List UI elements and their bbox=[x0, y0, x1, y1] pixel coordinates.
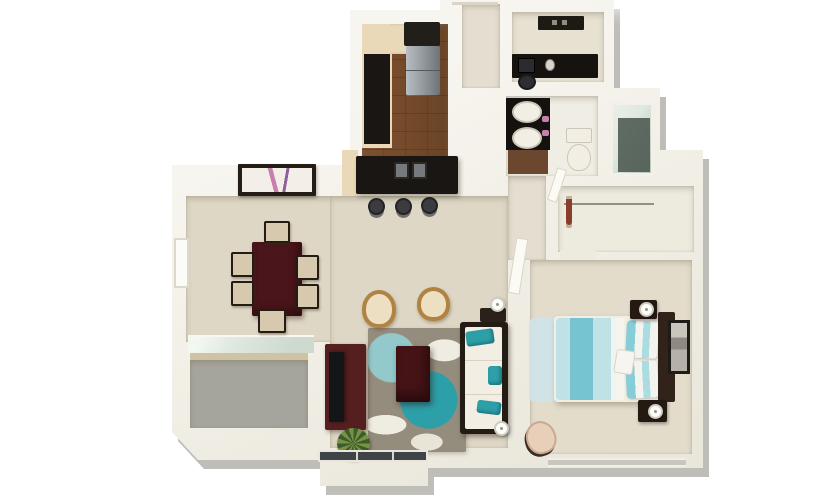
floor-lamp bbox=[490, 297, 505, 312]
entry-hall-floor bbox=[462, 4, 500, 88]
dining-wall-art bbox=[238, 164, 316, 196]
office-wall-shelf bbox=[538, 16, 584, 30]
vanity-accessory bbox=[542, 116, 549, 122]
vanity-accessory bbox=[542, 130, 549, 136]
office-chair bbox=[518, 74, 536, 90]
dining-chair bbox=[264, 221, 290, 243]
bed-accent-cushion bbox=[613, 349, 636, 376]
kitchen-black-countertop bbox=[364, 54, 390, 144]
dining-chair bbox=[296, 284, 319, 309]
dining-window bbox=[174, 238, 189, 288]
dining-chair bbox=[231, 252, 254, 277]
vanity-sink bbox=[512, 127, 542, 149]
vanity-sink bbox=[512, 101, 542, 123]
bathroom-vanity-wood-base bbox=[508, 150, 548, 174]
flat-tv bbox=[329, 352, 344, 422]
wicker-chair bbox=[417, 287, 450, 321]
balcony-sliding-glass-door bbox=[188, 335, 314, 355]
desk-accessory bbox=[545, 59, 555, 71]
bedroom-wall-art bbox=[668, 320, 690, 374]
kitchen-sink-basin-right bbox=[412, 162, 427, 179]
floor-lamp bbox=[494, 421, 509, 436]
living-room-sliding-glass-door bbox=[318, 450, 428, 462]
teal-pillow bbox=[476, 400, 501, 416]
table-lamp bbox=[639, 302, 654, 317]
shower-tub-interior bbox=[618, 118, 650, 172]
coffee-table bbox=[396, 346, 430, 402]
table-lamp bbox=[648, 404, 663, 419]
teal-pillow bbox=[488, 366, 502, 385]
desk-monitor bbox=[518, 58, 535, 73]
apartment-floor-plan-render bbox=[0, 0, 840, 500]
kitchen-dark-cabinet bbox=[404, 22, 440, 46]
refrigerator bbox=[406, 46, 440, 96]
dining-chair bbox=[231, 281, 254, 306]
entry-door bbox=[452, 2, 498, 5]
bedroom-window bbox=[548, 458, 686, 467]
toilet-bowl bbox=[567, 144, 591, 171]
dining-table bbox=[252, 242, 302, 316]
bar-stool bbox=[395, 198, 412, 215]
wicker-chair bbox=[362, 290, 396, 328]
hanging-garment bbox=[566, 199, 572, 225]
kitchen-sink-basin-left bbox=[394, 162, 409, 179]
hanging-clothes bbox=[566, 192, 654, 230]
striped-duvet bbox=[556, 318, 620, 400]
dining-chair bbox=[296, 255, 319, 280]
toilet-tank bbox=[566, 128, 592, 143]
dining-chair bbox=[258, 309, 286, 333]
balcony-floor bbox=[190, 360, 308, 428]
bar-stool bbox=[368, 198, 385, 215]
bar-stool bbox=[421, 197, 438, 214]
